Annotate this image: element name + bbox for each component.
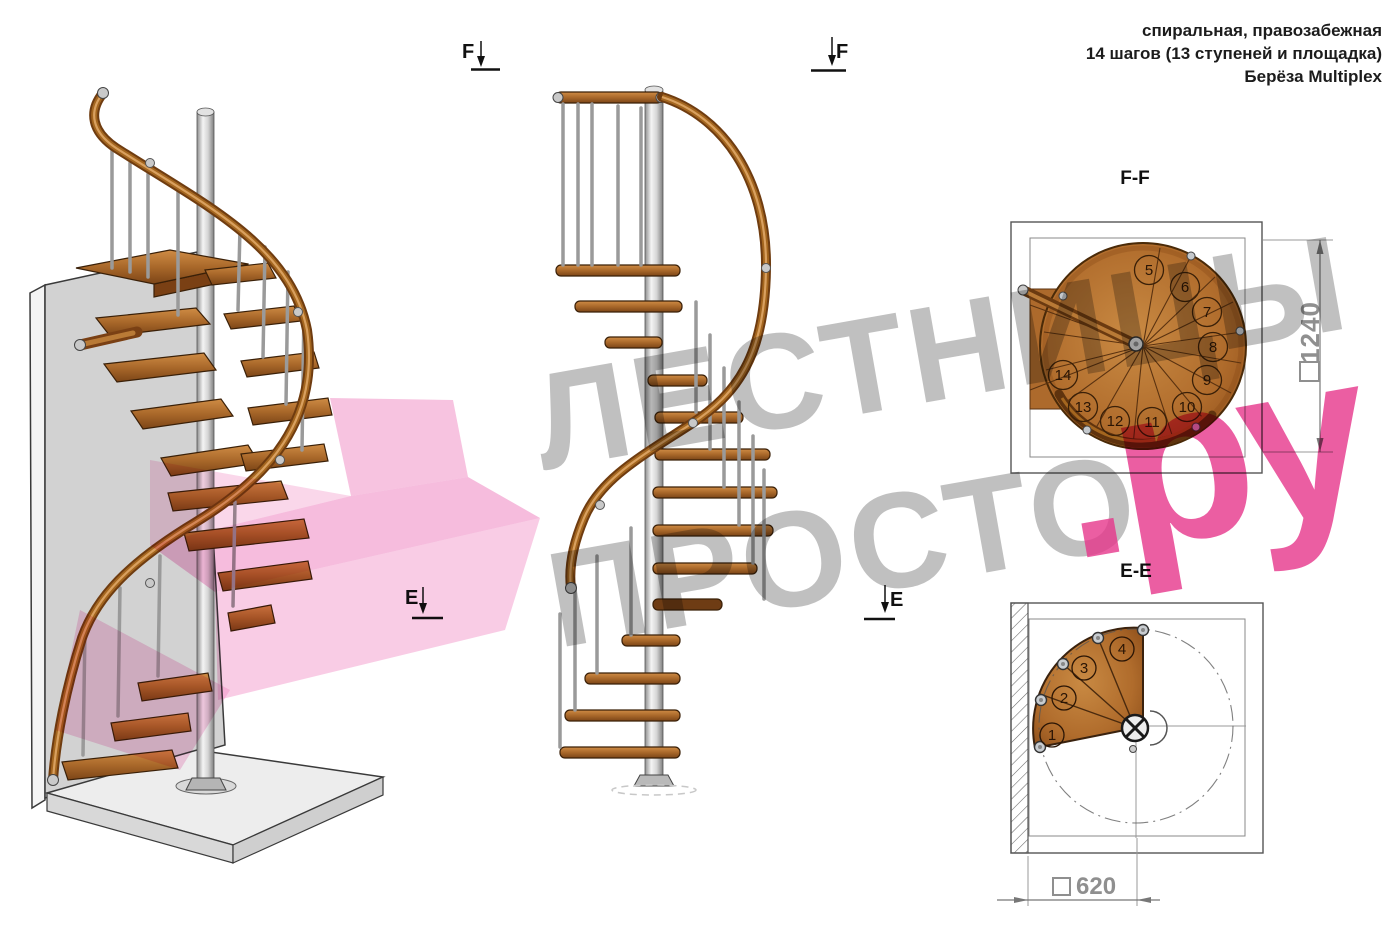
section-marker-f-left: F	[462, 41, 500, 70]
plan-view-ee: E-E 1	[997, 561, 1263, 906]
top-rail-elevation	[553, 92, 666, 103]
svg-text:4: 4	[1118, 641, 1126, 658]
ee-dimension-value: 620	[1076, 873, 1116, 900]
svg-text:F: F	[836, 41, 848, 63]
section-arrow-icon	[477, 56, 485, 67]
technical-drawing: F-F	[0, 0, 1400, 934]
svg-text:1: 1	[1048, 727, 1056, 744]
svg-text:F: F	[462, 41, 474, 63]
svg-text:2: 2	[1060, 690, 1068, 707]
square-symbol	[1053, 878, 1070, 895]
dim-arrow-right-icon	[1014, 897, 1028, 903]
section-marker-f-right: F	[811, 37, 848, 71]
section-arrow-icon	[828, 55, 836, 66]
annotation-line-2: 14 шагов (13 ступеней и площадка)	[1086, 44, 1382, 63]
drawing-canvas: F-F	[0, 0, 1400, 939]
annotation-line-3: Берёза Multiplex	[1244, 67, 1382, 86]
svg-text:3: 3	[1080, 660, 1088, 677]
wall-edge	[30, 285, 45, 808]
watermark-line-2-pink: .ру	[1036, 301, 1388, 608]
ff-section-label: F-F	[1120, 168, 1150, 189]
ee-wall-hatch	[1011, 603, 1028, 853]
dim-arrow-left-icon	[1137, 897, 1151, 903]
annotation-block: спиральная, правозабежная 14 шагов (13 с…	[1086, 21, 1383, 86]
annotation-line-1: спиральная, правозабежная	[1142, 21, 1382, 40]
